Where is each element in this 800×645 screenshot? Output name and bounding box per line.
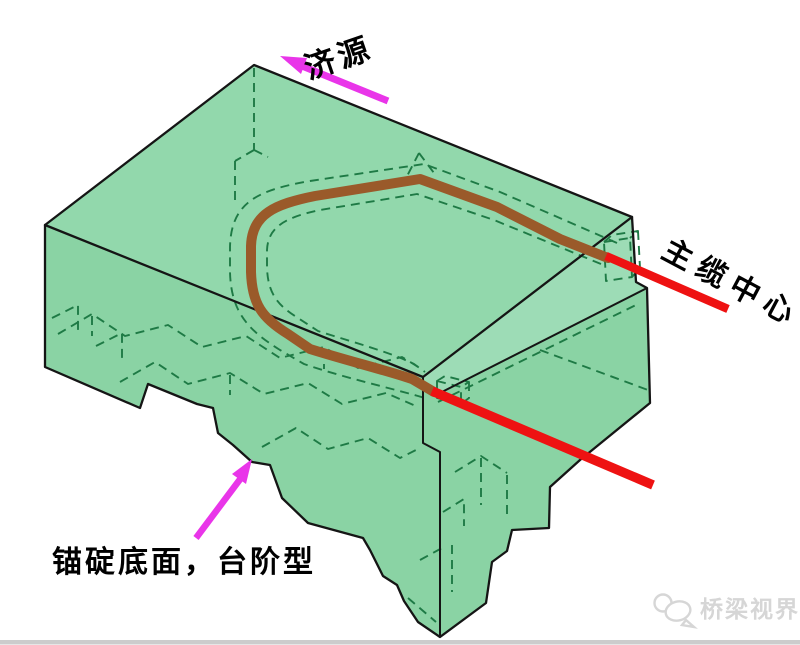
anchor-base-label: 锚碇底面，台阶型 (52, 545, 316, 579)
watermark-logo-icon (655, 595, 695, 628)
watermark: 桥梁视界 (655, 595, 800, 628)
anchor-base-arrow (196, 459, 252, 538)
anchor-base-arrow-shaft (196, 478, 241, 538)
diagram-svg: 济源 主缆中心 锚碇底面，台阶型 桥梁视界 (0, 0, 800, 645)
anchor-block-diagram: 济源 主缆中心 锚碇底面，台阶型 桥梁视界 (0, 0, 800, 645)
watermark-text: 桥梁视界 (700, 596, 800, 622)
footer-divider (0, 640, 800, 645)
anchor-base-arrow-head (232, 459, 252, 484)
